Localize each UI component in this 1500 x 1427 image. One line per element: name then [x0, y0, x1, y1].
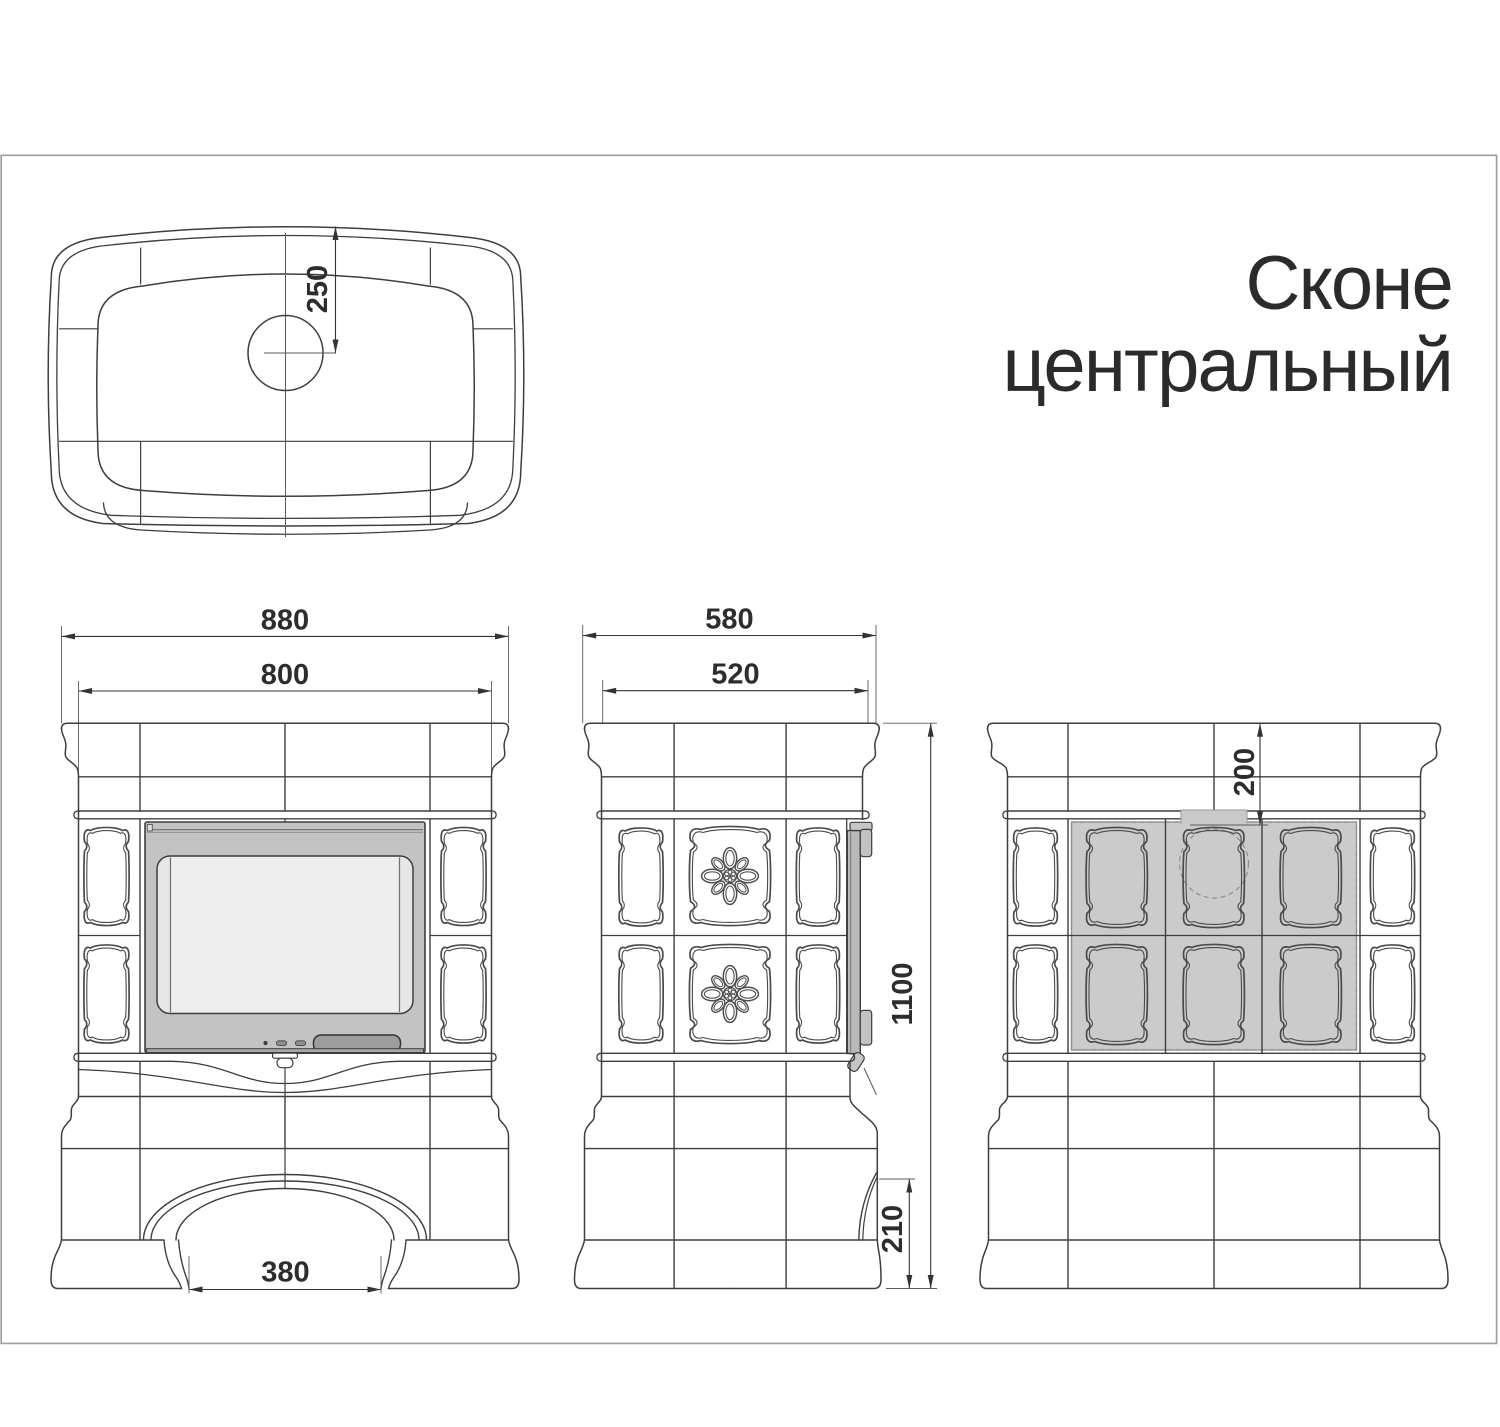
- svg-text:800: 800: [261, 659, 309, 691]
- svg-text:580: 580: [705, 604, 753, 636]
- svg-text:центральный: центральный: [1003, 323, 1452, 408]
- svg-text:Сконе: Сконе: [1246, 241, 1453, 326]
- svg-text:1100: 1100: [887, 963, 919, 1026]
- svg-text:200: 200: [1229, 748, 1261, 796]
- svg-text:210: 210: [877, 1205, 909, 1253]
- svg-text:880: 880: [261, 605, 309, 637]
- svg-text:380: 380: [261, 1257, 309, 1289]
- svg-text:250: 250: [302, 265, 334, 313]
- svg-text:520: 520: [711, 659, 759, 691]
